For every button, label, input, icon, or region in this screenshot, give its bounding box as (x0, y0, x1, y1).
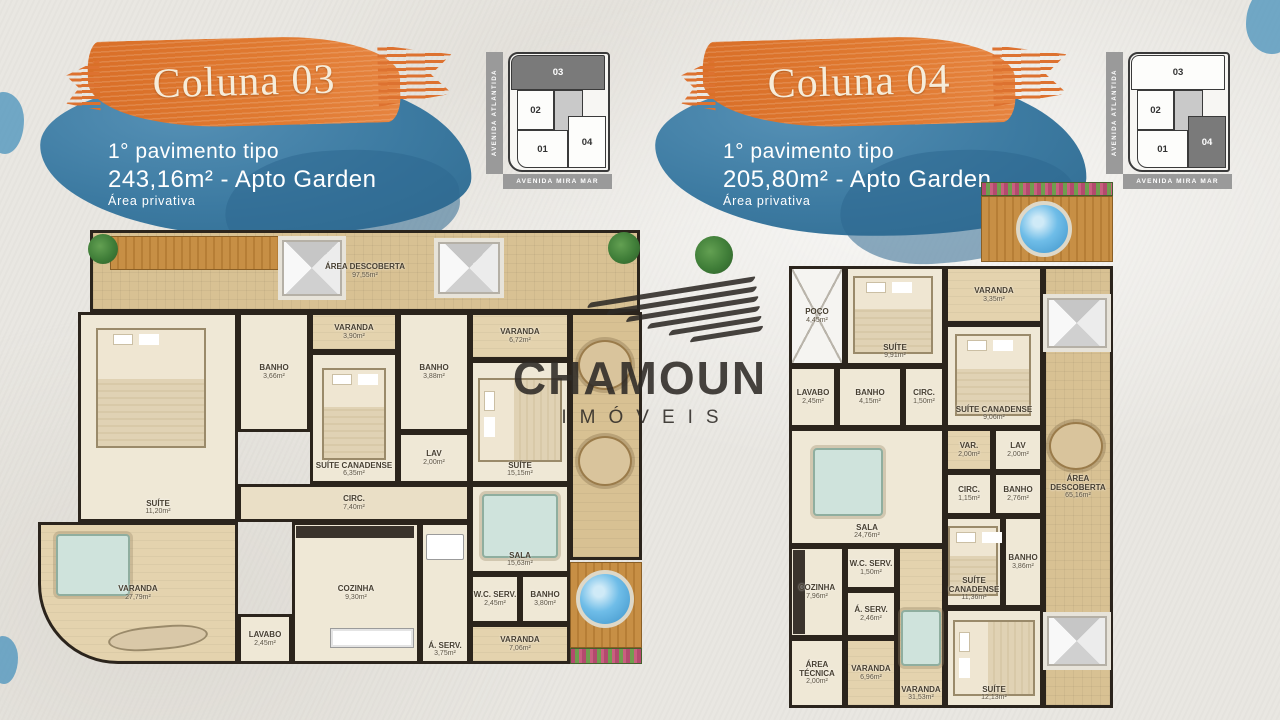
column-subtitle: 1° pavimento tipo 243,16m² - Apto Garden… (108, 140, 376, 208)
map-unit-03: 03 (1131, 55, 1225, 90)
bed-shape (948, 526, 998, 596)
room (993, 428, 1043, 472)
map-unit-03: 03 (511, 55, 605, 90)
room (945, 472, 993, 516)
map-unit-04: 04 (568, 116, 606, 168)
column-title: Coluna 03 (152, 56, 336, 109)
room (398, 312, 470, 432)
floorplan-coluna-04: ÁREA DESCOBERTA65,16m²POÇO4,45m²SUÍTE9,9… (785, 182, 1115, 710)
location-map-coluna-04: AVENIDA ATLÂNTIDA AVENIDA MIRA MAR 03 02… (1106, 52, 1232, 192)
plant-shape (88, 234, 118, 264)
sink-shape (330, 628, 414, 648)
gtable-shape (813, 448, 883, 516)
floor-type-text: 1° pavimento tipo (723, 140, 991, 164)
pool-shape (576, 570, 634, 628)
floorplan-coluna-03: ÁREA DESCOBERTA97,55m²SUÍTE11,20m²BANHO3… (30, 228, 645, 668)
room (520, 574, 570, 624)
room (238, 614, 292, 664)
gtable-shape (901, 610, 941, 666)
room (845, 638, 897, 708)
room (238, 484, 470, 522)
street-label-atlantida: AVENIDA ATLÂNTIDA (492, 69, 498, 156)
street-label-atlantida: AVENIDA ATLÂNTIDA (1112, 69, 1118, 156)
room (398, 432, 470, 484)
skylight-shape (438, 242, 500, 294)
gtable-shape (482, 494, 558, 558)
street-label-mira-mar: AVENIDA MIRA MAR (516, 178, 599, 185)
logo-subtitle: IMÓVEIS (513, 407, 767, 429)
private-area-text: Área privativa (108, 194, 376, 208)
map-unit-02: 02 (1137, 90, 1174, 130)
room (470, 624, 570, 664)
chamoun-imoveis-logo: CHAMOUN IMÓVEIS (513, 295, 767, 429)
building-outline: 03 02 01 04 (508, 52, 610, 172)
column-title: Coluna 04 (767, 56, 951, 109)
street-bar-vertical: AVENIDA ATLÂNTIDA (486, 52, 503, 174)
plant-shape (608, 232, 640, 264)
orange-brush-stroke: Coluna 04 (702, 34, 1016, 130)
room (789, 366, 837, 428)
map-unit-04: 04 (1188, 116, 1226, 168)
floor-type-text: 1° pavimento tipo (108, 140, 376, 164)
floorplan-sheet: { "watermark": { "title": "CHAMOUN", "su… (0, 0, 1280, 720)
blue-paint-chip (1246, 0, 1280, 54)
map-unit-01: 01 (517, 130, 568, 168)
room (945, 266, 1043, 324)
counter-shape (793, 550, 805, 634)
map-unit-02: 02 (517, 90, 554, 130)
flowers-shape (570, 648, 642, 664)
room (945, 428, 993, 472)
map-unit-01: 01 (1137, 130, 1188, 168)
skylight-shape (1047, 616, 1107, 666)
bedh-shape (953, 620, 1035, 696)
washer-shape (426, 534, 464, 560)
street-bar-horizontal: AVENIDA MIRA MAR (1123, 174, 1232, 189)
room (1003, 516, 1043, 608)
header-coluna-03: Coluna 03 1° pavimento tipo 243,16m² - A… (40, 28, 500, 248)
bed-shape (96, 328, 206, 448)
rtable-shape (578, 436, 632, 486)
room (310, 312, 398, 352)
bed-shape (955, 334, 1031, 416)
bed-shape (322, 368, 386, 460)
location-map-coluna-03: AVENIDA ATLÂNTIDA AVENIDA MIRA MAR 03 02… (486, 52, 612, 192)
room (845, 590, 897, 638)
bed-shape (853, 276, 933, 354)
flowers-shape (981, 182, 1113, 196)
gtable-shape (56, 534, 130, 596)
room (845, 546, 897, 590)
palm-plant (695, 236, 733, 274)
room (789, 638, 845, 708)
room (789, 266, 845, 366)
blue-paint-chip (0, 92, 24, 154)
area-text: 243,16m² - Apto Garden (108, 166, 376, 194)
rtable-shape (1049, 422, 1103, 470)
building-outline: 03 02 01 04 (1128, 52, 1230, 172)
skylight-shape (1047, 298, 1107, 348)
room (903, 366, 945, 428)
deckwood-shape (110, 236, 288, 270)
room (993, 472, 1043, 516)
pool-shape (1016, 201, 1072, 257)
street-label-mira-mar: AVENIDA MIRA MAR (1136, 178, 1219, 185)
room (470, 574, 520, 624)
counter-shape (296, 526, 414, 538)
room (238, 312, 310, 432)
skylight-shape (282, 240, 342, 296)
room (837, 366, 903, 428)
orange-brush-stroke: Coluna 03 (87, 34, 401, 130)
street-bar-horizontal: AVENIDA MIRA MAR (503, 174, 612, 189)
blue-paint-chip (0, 636, 18, 684)
street-bar-vertical: AVENIDA ATLÂNTIDA (1106, 52, 1123, 174)
